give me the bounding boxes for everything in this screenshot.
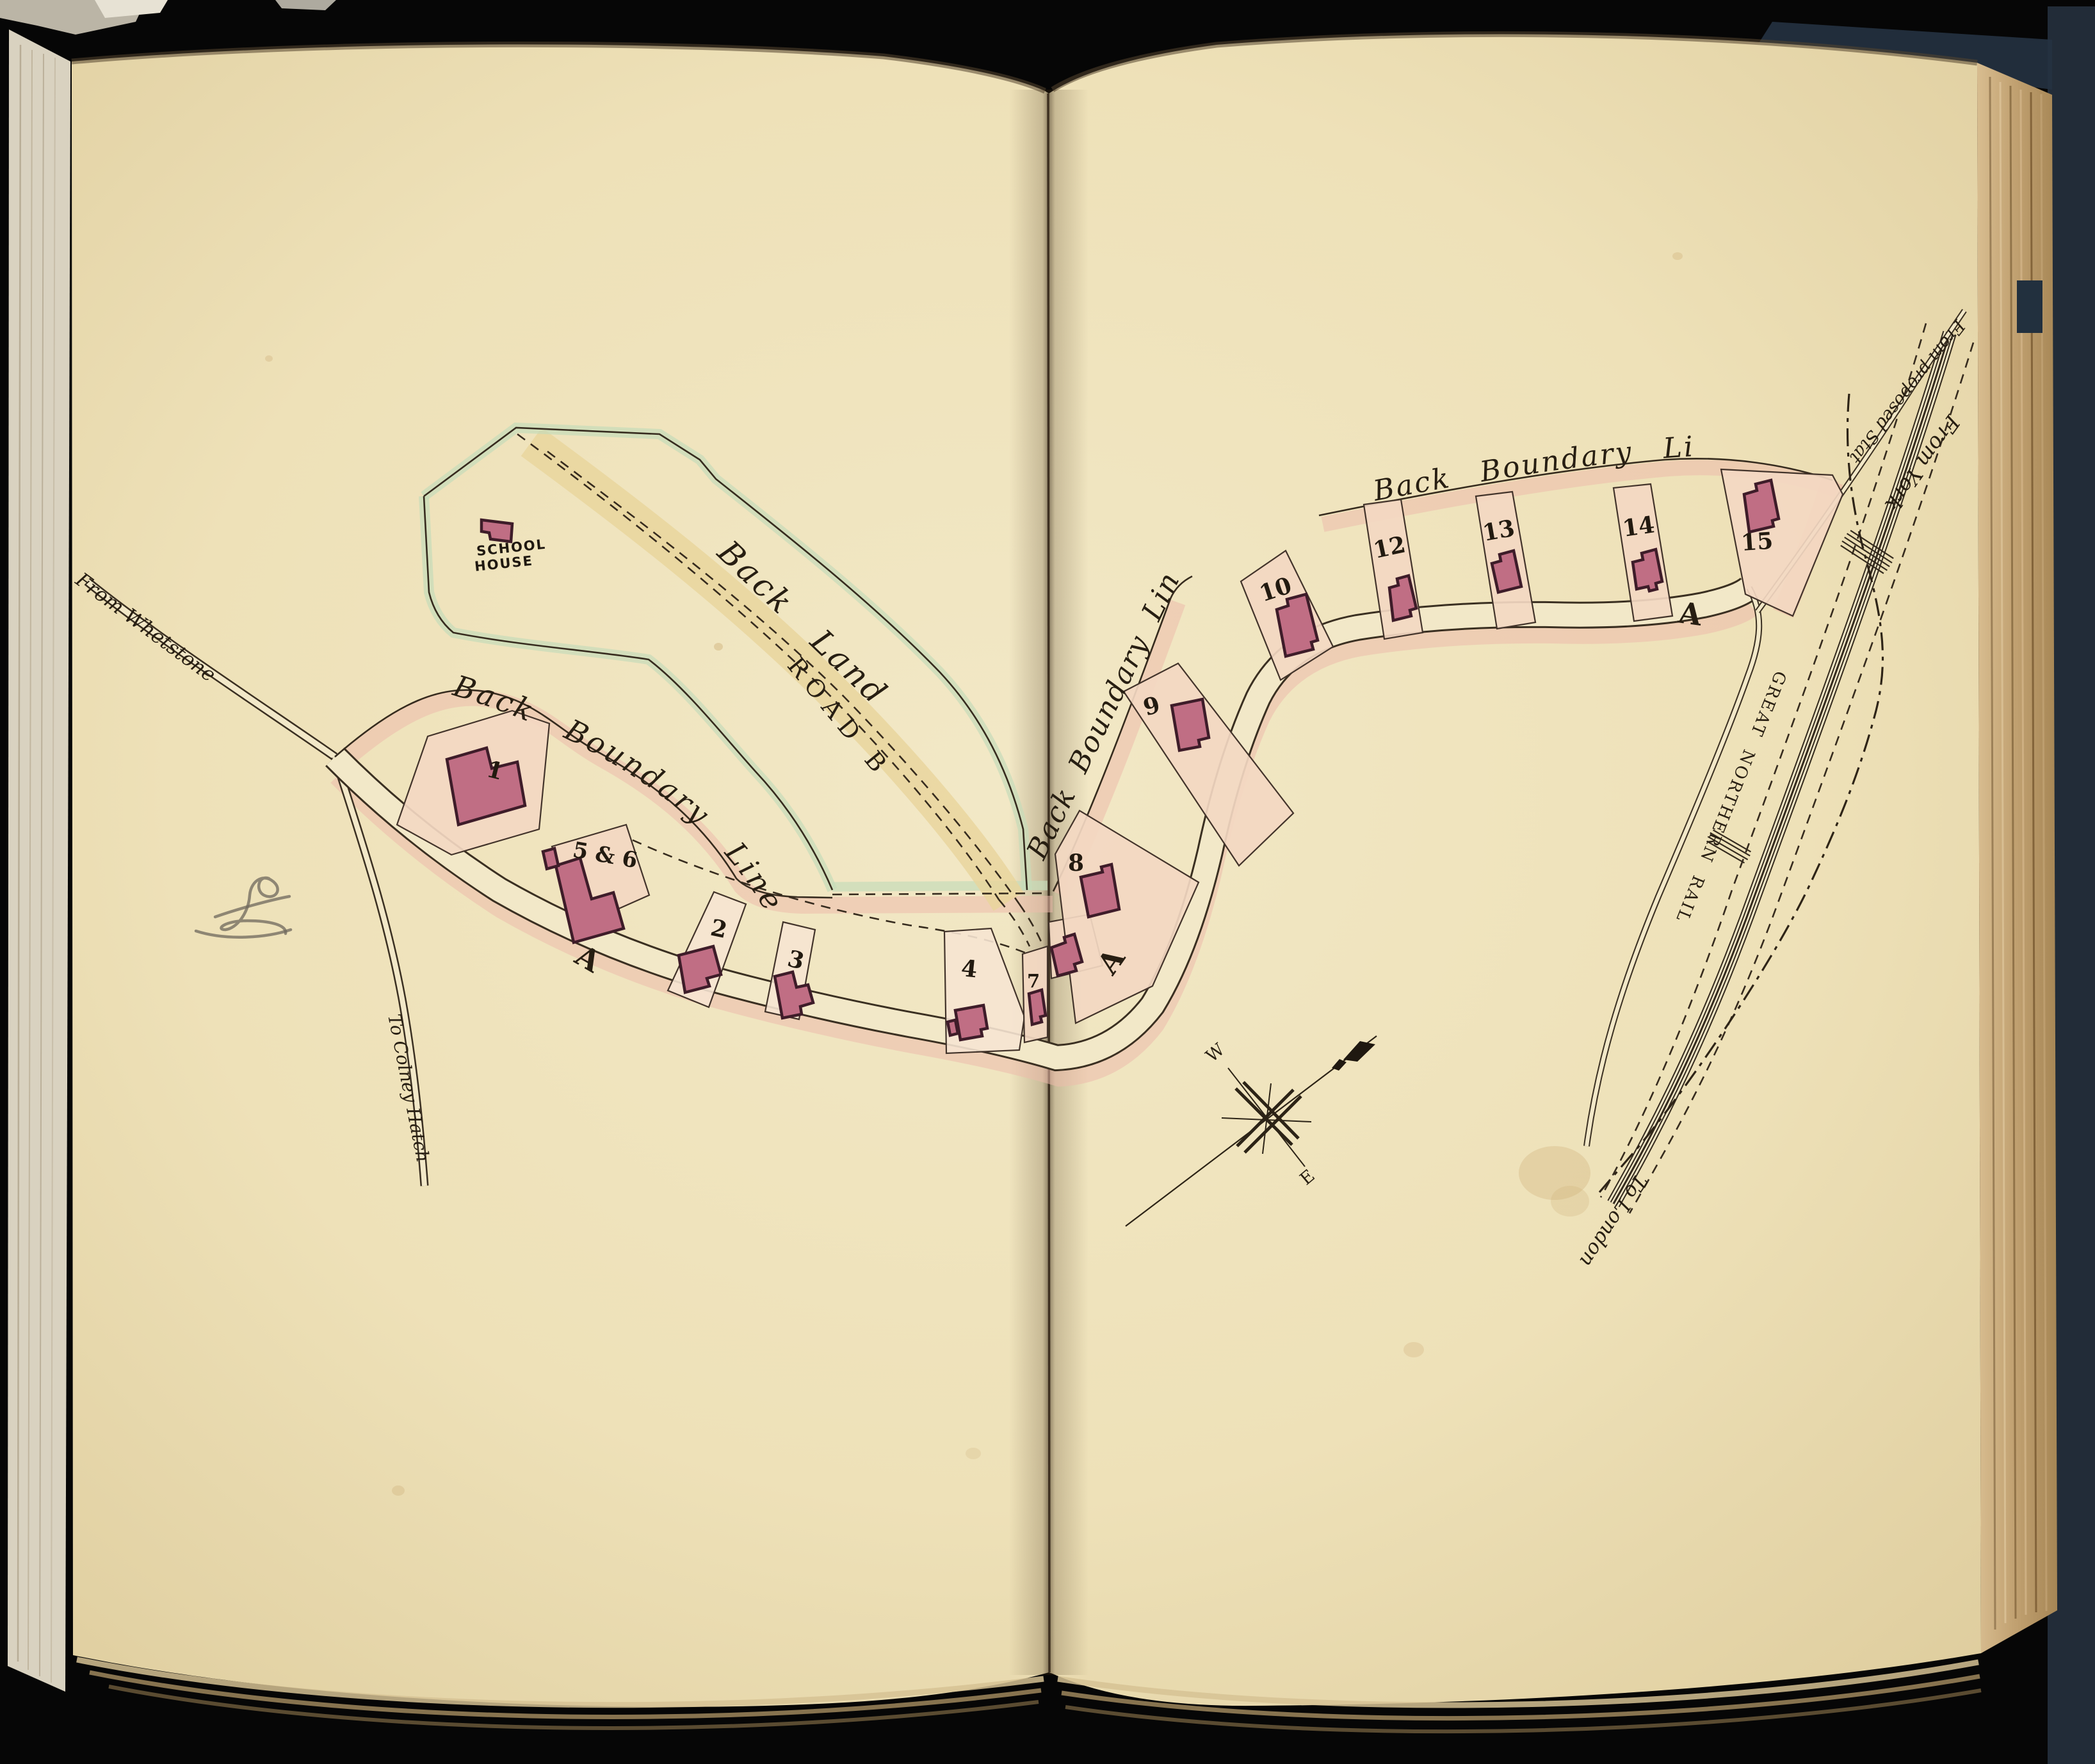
gutter-line <box>1048 93 1049 1672</box>
cover-chip <box>2017 280 2042 333</box>
plot-label-15: 15 <box>1740 528 1774 556</box>
book <box>0 0 2095 1764</box>
right-fore-edge <box>1977 63 2057 1653</box>
building-4-outbuilding <box>948 1020 958 1035</box>
scanned-book-photo: W E SCHOOL HOUSE Back Land ROAD B Back B… <box>0 0 2095 1764</box>
building-5-6-outbuilding <box>543 848 558 869</box>
plot-label-4: 4 <box>960 955 978 983</box>
plot-label-7: 7 <box>1027 970 1040 992</box>
plot-label-13: 13 <box>1480 515 1517 547</box>
plot-label-8: 8 <box>1068 850 1084 877</box>
plot-label-14: 14 <box>1621 511 1656 542</box>
building-4 <box>955 1005 987 1040</box>
